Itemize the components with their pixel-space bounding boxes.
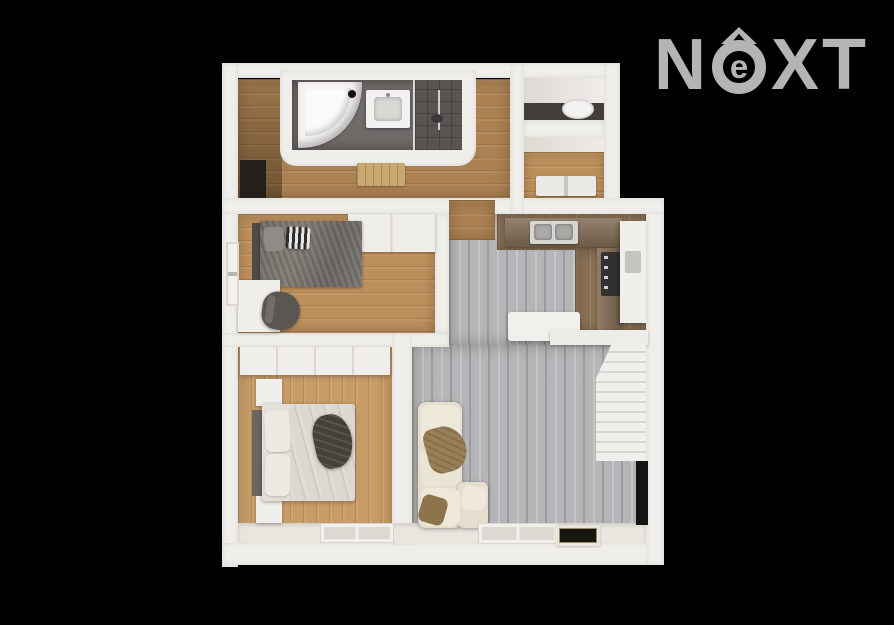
striped-pillow — [285, 226, 310, 249]
logo-circle: e — [712, 40, 766, 94]
shower-rail — [438, 90, 440, 130]
entry-door-opening — [240, 160, 266, 198]
corner-bathtub — [298, 82, 362, 148]
storage-ceiling — [524, 137, 604, 152]
sink-tap-icon — [386, 93, 390, 97]
bathtub-faucet-icon — [348, 90, 356, 98]
master-bedroom-window — [320, 523, 394, 543]
doormat-center — [559, 528, 597, 543]
wall-wc-divider — [524, 120, 604, 137]
doormat — [556, 525, 600, 546]
tall-cabinet — [620, 221, 646, 323]
window-pane — [324, 527, 390, 539]
kitchen-ledge — [550, 330, 648, 345]
cabinet-panel — [625, 251, 641, 273]
sink-basin — [534, 224, 552, 240]
sink-basin — [374, 97, 402, 121]
stove — [601, 252, 620, 296]
pillow — [264, 454, 290, 497]
logo-letters-xt: XT — [771, 34, 869, 96]
toilet — [562, 99, 594, 119]
sink-basin — [555, 224, 573, 240]
glass-partition — [413, 80, 415, 150]
logo-letter-e: e — [730, 50, 748, 83]
pillow — [263, 226, 285, 251]
wall-right-lower — [646, 198, 664, 565]
vanity-sink — [366, 90, 410, 128]
shower-head-icon — [431, 114, 443, 123]
wall-bottom — [222, 543, 664, 565]
bathroom — [292, 80, 462, 150]
single-bed — [252, 221, 362, 287]
window-pane — [482, 527, 554, 540]
wall-bedrooms-divider — [222, 333, 449, 347]
logo-caret-icon — [721, 27, 757, 44]
wall-left — [222, 63, 238, 567]
floorplan-scene: N e XT — [0, 0, 894, 625]
pillow — [264, 409, 291, 452]
living-room-window — [478, 523, 558, 544]
sofa-cushion — [460, 484, 487, 511]
next-logo: N e XT — [654, 34, 869, 96]
door-threshold — [449, 200, 495, 240]
bathtub-basin — [305, 88, 351, 136]
wc-ceiling — [524, 77, 604, 103]
hallway-cabinet — [357, 163, 405, 186]
wardrobe — [240, 347, 390, 375]
kitchen-sink — [530, 221, 578, 244]
nightstand — [256, 379, 282, 406]
wall-master-living — [392, 333, 412, 545]
wall-right-upper — [604, 63, 620, 214]
tv-panel — [636, 461, 648, 525]
wall-kids-living — [435, 214, 449, 333]
wall-middle-horizontal — [222, 198, 664, 214]
logo-letter-n: N — [654, 34, 709, 96]
wall-wc-left — [510, 63, 524, 214]
kids-bedroom-window — [226, 242, 239, 306]
double-bed — [252, 404, 355, 501]
corner-sofa — [418, 402, 488, 528]
drawer-cabinets — [536, 176, 596, 196]
stove-knobs-icon — [604, 256, 608, 292]
wc-room — [524, 77, 604, 122]
storage-room — [524, 137, 604, 198]
